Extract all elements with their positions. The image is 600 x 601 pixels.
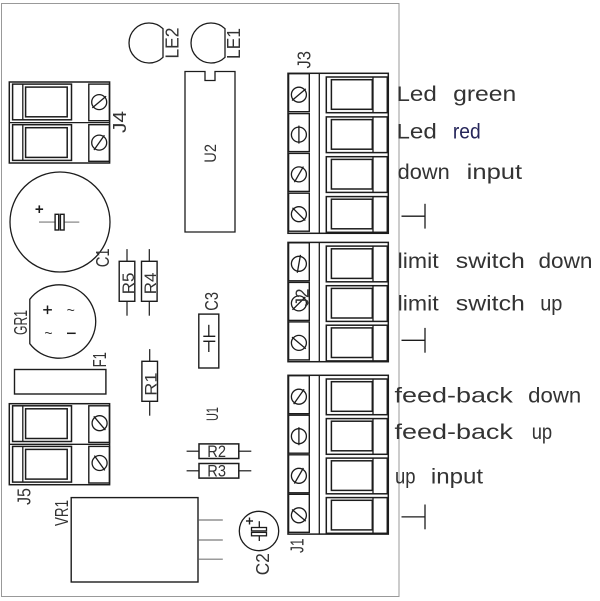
svg-text:GR1: GR1 — [11, 310, 31, 335]
svg-text:J3: J3 — [294, 51, 314, 69]
svg-text:R3: R3 — [207, 463, 226, 481]
svg-text:limit: limit — [398, 249, 439, 273]
svg-text:~: ~ — [44, 326, 52, 342]
svg-text:F1: F1 — [90, 352, 110, 367]
svg-text:Led: Led — [397, 119, 437, 143]
svg-text:J2: J2 — [293, 289, 313, 307]
svg-text:C2: C2 — [253, 553, 273, 575]
svg-text:feed-back: feed-back — [395, 384, 514, 408]
svg-text:C1: C1 — [93, 248, 113, 267]
svg-text:LE1: LE1 — [224, 28, 244, 59]
svg-text:LE2: LE2 — [162, 28, 182, 59]
svg-text:J1: J1 — [287, 539, 307, 554]
svg-text:up: up — [395, 464, 416, 488]
svg-text:R4: R4 — [141, 273, 160, 295]
svg-text:switch: switch — [456, 249, 525, 273]
svg-text:up: up — [532, 420, 553, 444]
svg-text:R5: R5 — [119, 273, 138, 295]
svg-text:up: up — [540, 292, 562, 316]
svg-text:down: down — [539, 249, 593, 273]
svg-text:J4: J4 — [110, 111, 130, 133]
svg-text:VR1: VR1 — [52, 500, 72, 526]
svg-text:green: green — [453, 82, 516, 106]
svg-text:C3: C3 — [202, 292, 222, 311]
svg-text:~: ~ — [67, 303, 75, 319]
svg-text:switch: switch — [456, 292, 525, 316]
svg-text:down: down — [398, 160, 450, 184]
svg-text:down: down — [528, 384, 581, 408]
svg-text:feed-back: feed-back — [395, 420, 514, 444]
svg-text:input: input — [467, 160, 522, 184]
svg-text:U2: U2 — [201, 144, 220, 163]
svg-text:R2: R2 — [207, 443, 226, 461]
svg-text:R1: R1 — [142, 373, 161, 396]
svg-text:red: red — [453, 119, 481, 143]
svg-text:Led: Led — [397, 82, 437, 106]
svg-text:limit: limit — [398, 292, 439, 316]
svg-text:U1: U1 — [203, 407, 222, 421]
svg-text:J5: J5 — [14, 488, 34, 505]
svg-text:input: input — [431, 464, 483, 488]
